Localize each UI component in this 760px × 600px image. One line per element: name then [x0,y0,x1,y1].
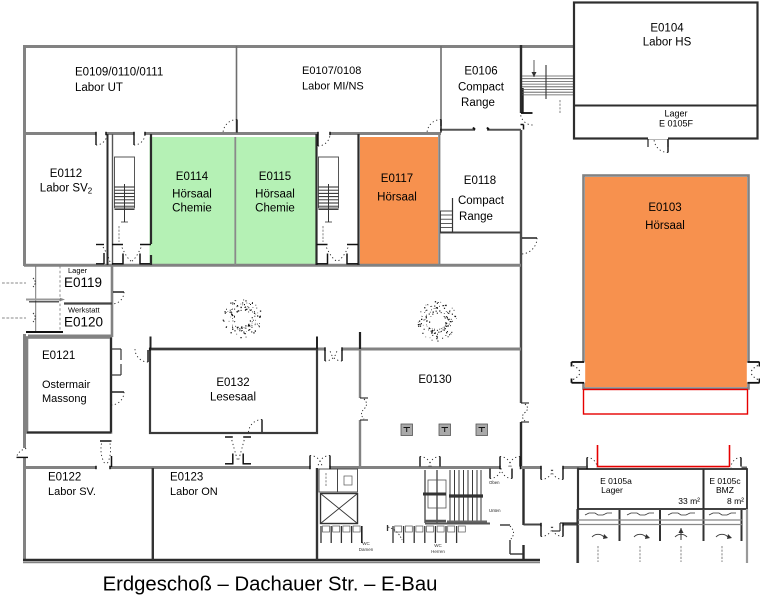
svg-text:Compact: Compact [458,195,505,207]
svg-text:E0114: E0114 [176,171,209,183]
svg-text:E0104: E0104 [650,23,684,35]
svg-text:Oben: Oben [489,480,500,485]
svg-text:E0130: E0130 [418,374,451,386]
svg-text:Range: Range [461,97,495,109]
svg-text:33 m²: 33 m² [678,496,700,506]
svg-text:Hörsaal: Hörsaal [645,220,685,232]
svg-text:Herren: Herren [431,549,445,554]
svg-text:8 m²: 8 m² [727,496,744,506]
svg-text:Lesesaal: Lesesaal [210,392,256,404]
svg-text:Chemie: Chemie [172,203,212,215]
svg-text:Labor UT: Labor UT [75,82,123,94]
svg-text:E 0105F: E 0105F [659,119,694,129]
svg-text:Labor ON: Labor ON [170,486,218,498]
svg-text:Hörsaal: Hörsaal [172,189,212,201]
svg-text:E0117: E0117 [381,173,413,185]
svg-text:E0120: E0120 [64,315,103,330]
svg-text:Labor SV2: Labor SV2 [40,183,93,196]
svg-text:Damen: Damen [359,547,374,552]
svg-text:E0123: E0123 [170,472,203,484]
svg-text:E0118: E0118 [464,175,496,187]
svg-text:Hörsaal: Hörsaal [377,192,417,204]
svg-text:E0115: E0115 [259,171,291,183]
svg-text:E0103: E0103 [648,202,681,214]
svg-text:Chemie: Chemie [255,203,295,215]
svg-text:BMZ: BMZ [716,485,734,495]
svg-text:Labor HS: Labor HS [643,37,692,49]
svg-text:E0112: E0112 [50,168,82,180]
svg-text:Werkstatt: Werkstatt [68,306,100,315]
svg-text:Lager: Lager [601,485,623,495]
svg-text:Labor SV.: Labor SV. [48,486,96,498]
svg-text:Unten: Unten [489,508,501,513]
svg-text:E0107/0108: E0107/0108 [302,65,361,77]
svg-text:Ostermair: Ostermair [42,379,91,391]
svg-text:Lager: Lager [68,266,88,275]
svg-text:Massong: Massong [42,393,87,405]
svg-text:E0121: E0121 [42,350,75,362]
svg-text:Range: Range [459,211,493,223]
svg-text:E0109/0110/0111: E0109/0110/0111 [75,67,163,79]
svg-text:WC: WC [362,541,370,546]
svg-text:Labor MI/NS: Labor MI/NS [302,81,364,93]
svg-text:E0119: E0119 [64,275,102,290]
svg-text:Hörsaal: Hörsaal [255,189,295,201]
svg-text:E0106: E0106 [464,66,497,78]
svg-text:E0132: E0132 [216,377,249,389]
svg-text:WC: WC [434,543,442,548]
svg-text:Erdgeschoß – Dachauer Str. – E: Erdgeschoß – Dachauer Str. – E-Bau [103,574,438,596]
svg-text:E0122: E0122 [48,472,81,484]
svg-text:Compact: Compact [458,82,505,94]
svg-text:Lager: Lager [664,109,687,119]
